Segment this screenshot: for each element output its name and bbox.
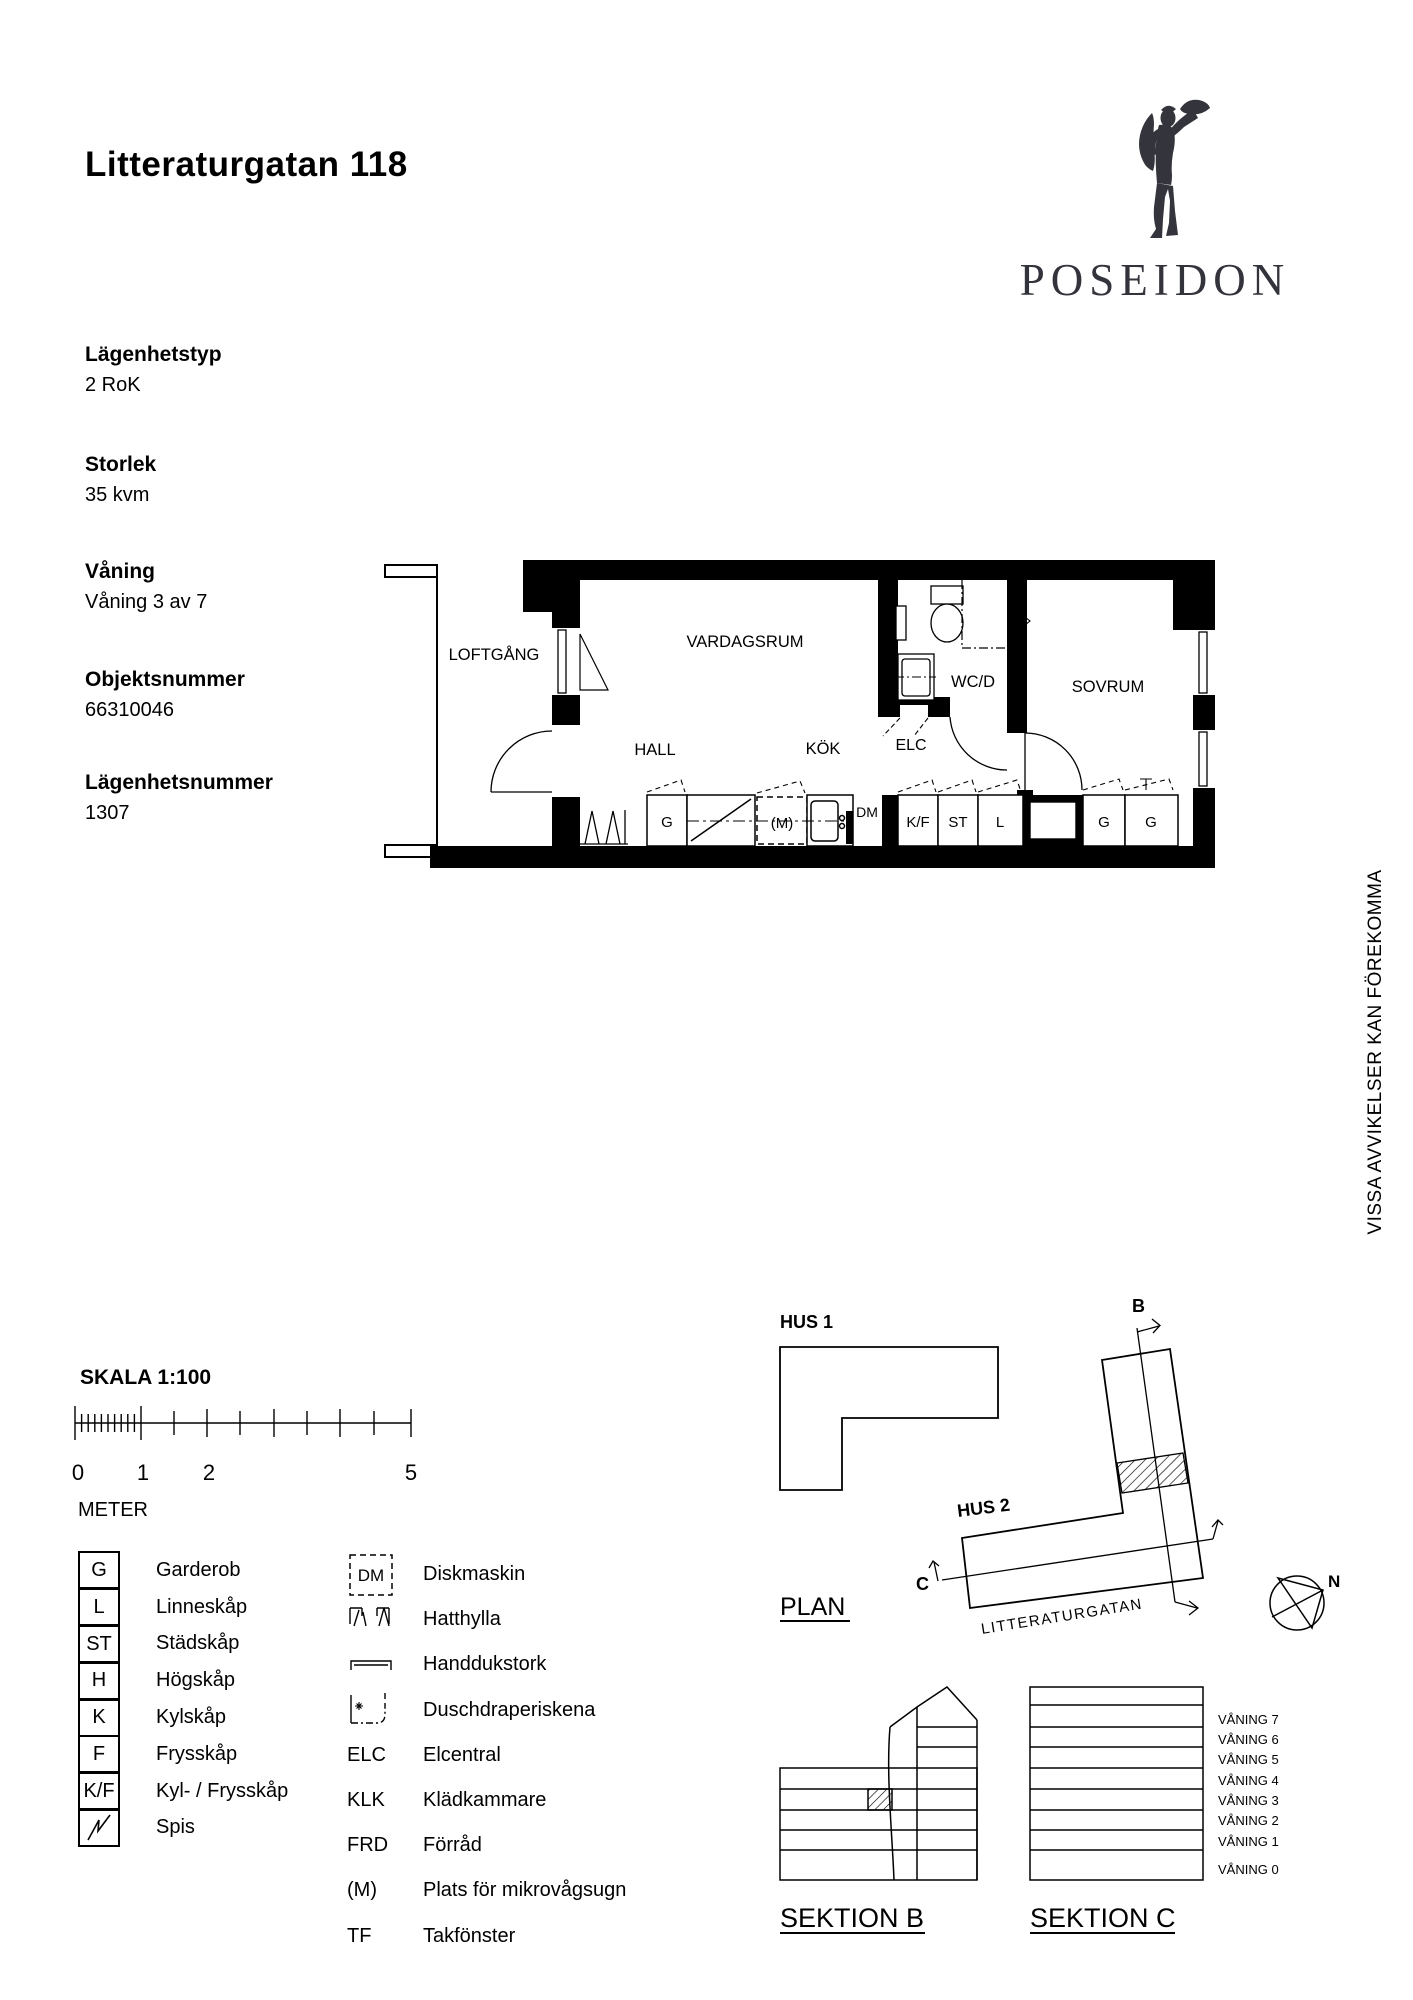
field-floor: Våning Våning 3 av 7 bbox=[85, 560, 385, 614]
scale-tick-5: 5 bbox=[405, 1460, 417, 1485]
section-b-drawing bbox=[780, 1687, 977, 1880]
field-apartment-type: Lägenhetstyp 2 RoK bbox=[85, 343, 385, 397]
fridge-freezer-label: K/F bbox=[906, 814, 929, 831]
stove-symbol-icon bbox=[78, 1809, 120, 1847]
wardrobe-label: G bbox=[661, 814, 673, 831]
legend-item-kylskap: K Kylskåp bbox=[78, 1699, 288, 1736]
poseidon-logo-wordmark: POSEIDON bbox=[1000, 254, 1310, 306]
field-value: Våning 3 av 7 bbox=[85, 591, 385, 614]
field-value: 35 kvm bbox=[85, 484, 385, 507]
floor-label: VÅNING 7 bbox=[1218, 1712, 1279, 1727]
room-label-sovrum: SOVRUM bbox=[1072, 678, 1144, 696]
legend-item-hatthylla: Hatthylla bbox=[347, 1597, 626, 1642]
section-c-marker: C bbox=[916, 1574, 929, 1594]
legend-key-box: L bbox=[78, 1588, 120, 1626]
section-c-title: SEKTION C bbox=[1030, 1903, 1176, 1933]
legend-item-duschdraperiskena: Duschdraperiskena bbox=[347, 1688, 626, 1733]
field-label: Lägenhetsnummer bbox=[85, 771, 385, 795]
dishwasher-symbol-icon: DM bbox=[347, 1552, 423, 1598]
shaft bbox=[1030, 802, 1076, 839]
north-marker: N bbox=[1328, 1572, 1340, 1591]
room-label-loftgang: LOFTGÅNG bbox=[449, 645, 540, 664]
entrance-door-icon bbox=[491, 731, 552, 792]
scale-tick-0: 0 bbox=[72, 1460, 84, 1485]
wardrobe-label: G bbox=[1098, 814, 1110, 831]
wardrobe-label: G bbox=[1145, 814, 1157, 831]
floor-label: VÅNING 0 bbox=[1218, 1862, 1279, 1877]
elc-niche bbox=[900, 705, 928, 717]
section-b-title: SEKTION B bbox=[780, 1903, 924, 1933]
shower-rail-symbol-icon bbox=[347, 1689, 423, 1731]
room-label-kok: KÖK bbox=[806, 740, 841, 758]
compass-icon bbox=[1270, 1576, 1324, 1630]
floor-label: VÅNING 5 bbox=[1218, 1752, 1279, 1767]
field-label: Storlek bbox=[85, 453, 385, 477]
field-label: Lägenhetstyp bbox=[85, 343, 385, 367]
apartment-fact-sheet: { "header": { "title": "Litteraturgatan … bbox=[0, 0, 1413, 2000]
legend-item-linneskap: L Linneskåp bbox=[78, 1589, 288, 1626]
building-sections: VÅNING 7 VÅNING 6 VÅNING 5 VÅNING 4 VÅNI… bbox=[775, 1680, 1335, 1950]
elc-leader-lines bbox=[883, 718, 928, 736]
legend-key-box: H bbox=[78, 1662, 120, 1700]
towel-rail-icon bbox=[896, 606, 906, 640]
field-label: Objektsnummer bbox=[85, 668, 385, 692]
plan-title: PLAN bbox=[780, 1593, 845, 1621]
microwave-label: (M) bbox=[771, 815, 794, 832]
shower-curtain-rail-icon bbox=[962, 580, 1007, 648]
cleaning-cabinet-label: ST bbox=[948, 814, 967, 831]
room-label-elc: ELC bbox=[895, 737, 926, 754]
disclaimer-vertical-note: VISSA AVVIKELSER KAN FÖREKOMMA bbox=[1365, 869, 1387, 1234]
svg-text:DM: DM bbox=[358, 1566, 384, 1585]
scale-unit: METER bbox=[78, 1499, 148, 1521]
legend-item-spis: Spis bbox=[78, 1810, 288, 1847]
legend-item-stadskap: ST Städskåp bbox=[78, 1626, 288, 1663]
legend-item-frysskap: F Frysskåp bbox=[78, 1736, 288, 1773]
field-object-number: Objektsnummer 66310046 bbox=[85, 668, 385, 722]
floor-label: VÅNING 2 bbox=[1218, 1813, 1279, 1828]
field-size: Storlek 35 kvm bbox=[85, 453, 385, 507]
legend-item-mikrovagsugn: (M) Plats för mikrovågsugn bbox=[347, 1868, 626, 1913]
room-label-vardagsrum: VARDAGSRUM bbox=[686, 633, 803, 651]
site-plan: HUS 1 HUS 2 B C N PLAN LITTERATURGATAN bbox=[770, 1290, 1370, 1670]
field-label: Våning bbox=[85, 560, 385, 584]
legend-symbols: DM Diskmaskin Hatthylla Handdukstork bbox=[347, 1552, 626, 1959]
toilet-icon bbox=[931, 586, 963, 642]
legend-item-forrad: FRD Förråd bbox=[347, 1823, 626, 1868]
scale-tick-2: 2 bbox=[203, 1460, 215, 1485]
apartment-location-hatch bbox=[1117, 1453, 1188, 1493]
section-c-drawing bbox=[1030, 1687, 1203, 1880]
legend-key-box: K/F bbox=[78, 1772, 120, 1810]
page-title: Litteraturgatan 118 bbox=[85, 145, 408, 185]
dishwasher-label: DM bbox=[856, 804, 878, 820]
legend-key-box: ST bbox=[78, 1625, 120, 1663]
legend-key-box: F bbox=[78, 1735, 120, 1773]
field-value: 1307 bbox=[85, 802, 385, 825]
legend-item-garderob: G Garderob bbox=[78, 1552, 288, 1589]
floor-label: VÅNING 4 bbox=[1218, 1773, 1279, 1788]
poseidon-statue-icon bbox=[1118, 96, 1214, 244]
hus2-label: HUS 2 bbox=[956, 1495, 1011, 1521]
legend-item-elcentral: ELC Elcentral bbox=[347, 1733, 626, 1778]
floor-label: VÅNING 6 bbox=[1218, 1732, 1279, 1747]
towel-rail-symbol-icon bbox=[347, 1654, 423, 1676]
legend-key-box: G bbox=[78, 1551, 120, 1589]
legend-item-takfonster: TF Takfönster bbox=[347, 1914, 626, 1959]
bedroom-door-icon bbox=[1025, 733, 1082, 790]
building-hus1-outline bbox=[780, 1347, 998, 1490]
field-value: 66310046 bbox=[85, 699, 385, 722]
legend-cabinets: G Garderob L Linneskåp ST Städskåp H Hög… bbox=[78, 1552, 288, 1846]
street-label: LITTERATURGATAN bbox=[980, 1596, 1144, 1638]
scale-bar: 0 1 2 5 METER bbox=[70, 1398, 440, 1523]
scale-tick-1: 1 bbox=[137, 1460, 149, 1485]
legend-key-box: K bbox=[78, 1699, 120, 1737]
walkway-railing bbox=[385, 565, 437, 857]
legend-item-hogskap: H Högskåp bbox=[78, 1662, 288, 1699]
section-b-marker: B bbox=[1132, 1296, 1145, 1316]
cabinet-swing-lines bbox=[647, 779, 1173, 793]
floor-labels: VÅNING 7 VÅNING 6 VÅNING 5 VÅNING 4 VÅNI… bbox=[1218, 1712, 1279, 1877]
linen-cabinet-label: L bbox=[996, 814, 1004, 831]
legend-item-kyl-frysskap: K/F Kyl- / Frysskåp bbox=[78, 1773, 288, 1810]
room-label-wcd: WC/D bbox=[951, 673, 995, 691]
legend-item-kladkammare: KLK Klädkammare bbox=[347, 1778, 626, 1823]
legend-item-diskmaskin: DM Diskmaskin bbox=[347, 1552, 626, 1597]
hus1-label: HUS 1 bbox=[780, 1312, 833, 1332]
floor-label: VÅNING 3 bbox=[1218, 1793, 1279, 1808]
room-label-hall: HALL bbox=[634, 741, 675, 759]
field-value: 2 RoK bbox=[85, 374, 385, 397]
scale-heading: SKALA 1:100 bbox=[80, 1366, 211, 1390]
field-apartment-number: Lägenhetsnummer 1307 bbox=[85, 771, 385, 825]
floor-plan: LOFTGÅNG VARDAGSRUM HALL KÖK WC/D ELC SO… bbox=[380, 550, 1230, 880]
wc-door-icon bbox=[950, 717, 1007, 770]
hat-shelf-symbol-icon bbox=[347, 1602, 423, 1638]
hat-shelf-icon bbox=[576, 810, 628, 844]
floor-label: VÅNING 1 bbox=[1218, 1834, 1279, 1849]
legend-item-handdukstork: Handdukstork bbox=[347, 1642, 626, 1687]
section-line-c bbox=[929, 1520, 1223, 1581]
